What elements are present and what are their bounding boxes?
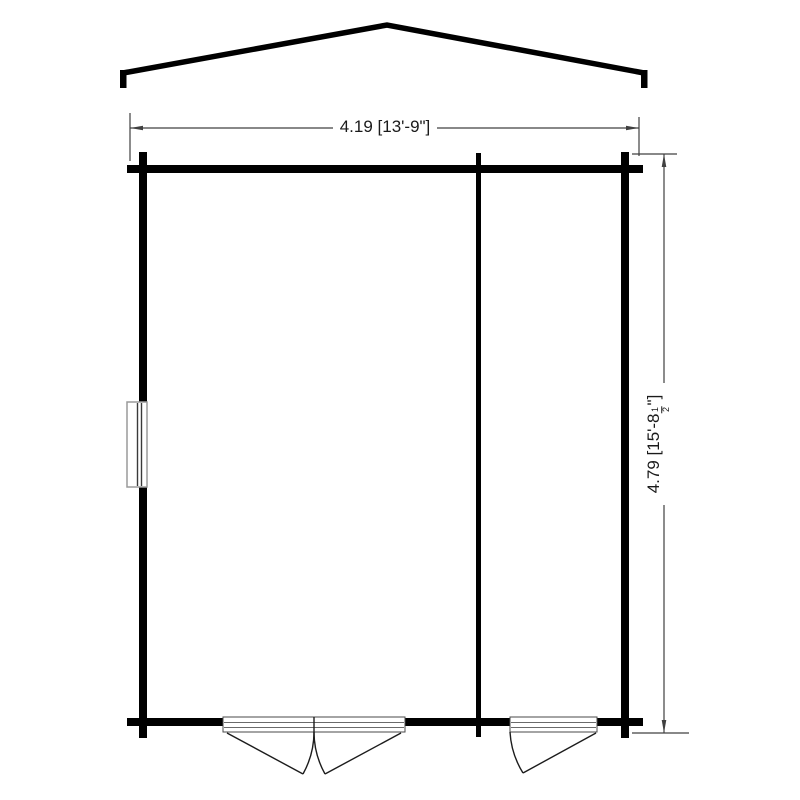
height-dim-arrow-bottom	[662, 720, 667, 733]
single-door-leaf	[523, 733, 596, 773]
top-wall	[127, 165, 643, 173]
double-door-left-leaf	[227, 733, 303, 774]
roof-eave-right	[641, 70, 648, 88]
right-wall	[621, 152, 629, 738]
double-door-right-swing-arc	[314, 732, 325, 774]
bottom-wall-right-segment	[597, 718, 643, 726]
partition-wall	[476, 153, 481, 737]
roof-eave-left	[120, 70, 127, 88]
roof-outline	[123, 25, 644, 73]
height-dim-arrow-top	[662, 154, 667, 167]
single-door-swing-arc	[510, 732, 523, 773]
single-door-threshold	[510, 717, 597, 732]
bottom-wall-left-segment	[127, 718, 223, 726]
double-door-right-leaf	[325, 733, 401, 774]
height-dimension-fraction: 12	[651, 406, 672, 413]
double-door-left-swing-arc	[303, 732, 314, 774]
height-dimension-fraction-numerator: 1	[651, 406, 662, 413]
height-dimension-fraction-denominator: 2	[662, 406, 672, 413]
floor-plan-drawing: 4.19 [13'-9"] 4.79 [15'-812"]	[0, 0, 800, 800]
height-dimension-label: 4.79 [15'-812"]	[644, 390, 672, 499]
width-dim-arrow-left	[130, 126, 143, 131]
height-dimension-text: 4.79 [15'-8	[644, 413, 663, 493]
bottom-wall-middle-segment	[405, 718, 510, 726]
width-dim-arrow-right	[626, 126, 639, 131]
height-dimension-suffix: "]	[644, 395, 663, 406]
width-dimension-label: 4.19 [13'-9"]	[335, 117, 436, 137]
